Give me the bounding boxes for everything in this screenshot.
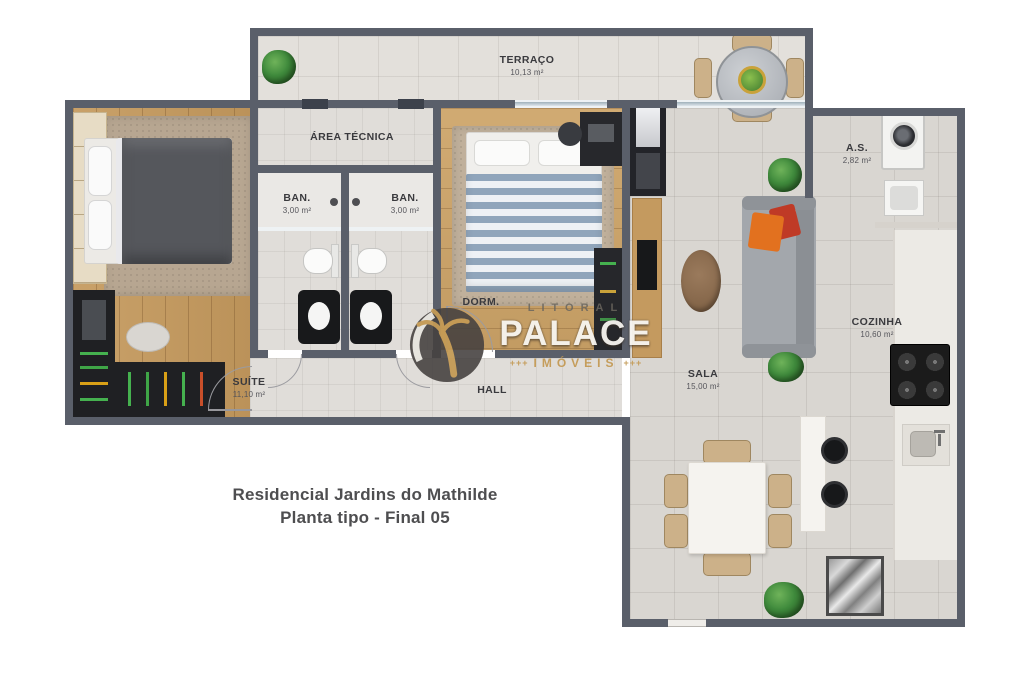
toilet	[357, 248, 387, 274]
wall	[258, 350, 268, 358]
room-name: TERRAÇO	[500, 54, 555, 66]
room-area: 10,13 m²	[500, 68, 555, 78]
room-name: BAN.	[283, 192, 310, 204]
terrace-chair	[786, 58, 804, 98]
room-label-terrace: TERRAÇO 10,13 m²	[500, 54, 555, 77]
room-name: SUÍTE	[233, 376, 266, 388]
as-kitchen-counter	[875, 222, 957, 228]
wall	[65, 417, 630, 425]
caption-line1: Residencial Jardins do Mathilde	[180, 484, 550, 507]
watermark-palace: PALACE	[492, 314, 660, 354]
appliance-front	[636, 153, 660, 189]
vanity-sink	[360, 302, 382, 330]
laptop	[588, 124, 614, 142]
suite-duvet	[116, 138, 232, 264]
floorplan-canvas: TERRAÇO 10,13 m² ÁREA TÉCNICA BAN. 3,00 …	[0, 0, 1024, 681]
watermark-imoveis-row: +++ IMÓVEIS +++	[492, 356, 660, 370]
terrace-chair	[694, 58, 712, 98]
wall	[706, 619, 965, 627]
dining-chair	[664, 474, 688, 508]
closet-accent	[182, 372, 185, 406]
watermark-litoral: LITORAL	[492, 302, 660, 314]
wall	[445, 100, 515, 108]
closet-accent	[146, 372, 149, 406]
dining-chair	[703, 440, 751, 464]
sink-bowl	[910, 431, 936, 457]
caption-line2: Planta tipo - Final 05	[180, 507, 550, 530]
vent-hatch	[398, 99, 424, 109]
room-area: 3,00 m²	[283, 206, 312, 216]
room-label-bathroom1: BAN. 3,00 m²	[283, 192, 312, 215]
washer-door	[890, 122, 918, 150]
vanity-sink	[308, 302, 330, 330]
desk-chair	[558, 122, 582, 146]
bedroom-striped-blanket	[466, 174, 602, 292]
terrace-sliding-door	[677, 100, 805, 108]
toilet	[303, 248, 333, 274]
closet-accent	[200, 372, 203, 406]
wall	[957, 108, 965, 627]
wall	[622, 619, 668, 627]
wall	[250, 28, 258, 108]
bar-stool	[821, 437, 848, 464]
room-area: 15,00 m²	[686, 382, 719, 392]
room-label-kitchen: COZINHA 10,60 m²	[852, 316, 903, 339]
bar-stool	[821, 481, 848, 508]
wall	[65, 100, 258, 108]
dining-chair	[768, 474, 792, 508]
room-name: BAN.	[391, 192, 418, 204]
suite-door-leaf	[208, 409, 252, 411]
closet-accent	[80, 398, 108, 401]
tv-screen	[82, 300, 106, 340]
shower-glass	[258, 227, 341, 231]
suite-pillow	[88, 146, 112, 196]
bedroom-pillow	[474, 140, 530, 166]
room-label-laundry: A.S. 2,82 m²	[843, 142, 872, 165]
tv-screen	[637, 240, 657, 290]
bedroom-window	[515, 100, 607, 108]
room-label-living-room: SALA 15,00 m²	[686, 368, 719, 391]
dining-chair	[703, 552, 751, 576]
closet-accent	[128, 372, 131, 406]
wall	[622, 417, 630, 627]
wall	[65, 100, 73, 425]
wall	[805, 116, 813, 198]
suite-pillow	[88, 200, 112, 250]
plan-caption: Residencial Jardins do Mathilde Planta t…	[180, 484, 550, 530]
closet-accent	[164, 372, 167, 406]
room-area: 11,10 m²	[233, 390, 266, 400]
kitchen-island	[800, 416, 826, 532]
coffee-pouf	[681, 250, 721, 312]
closet-accent	[600, 262, 616, 265]
agency-watermark: LITORAL PALACE +++ IMÓVEIS +++	[404, 298, 664, 394]
wall	[341, 165, 349, 358]
dining-table	[688, 462, 766, 554]
room-area: 2,82 m²	[843, 156, 872, 166]
room-label-bathroom2: BAN. 3,00 m²	[391, 192, 420, 215]
closet-accent	[80, 352, 108, 355]
wall	[250, 108, 258, 358]
sofa-pillow-orange	[748, 212, 785, 252]
palace-logo-icon	[408, 306, 486, 384]
room-name: A.S.	[846, 142, 868, 154]
shower-head	[330, 198, 338, 206]
sink-faucet	[934, 430, 945, 433]
room-label-technical-area: ÁREA TÉCNICA	[310, 131, 394, 144]
room-name: ÁREA TÉCNICA	[310, 131, 394, 143]
suite-ottoman	[126, 322, 170, 352]
dining-chair	[664, 514, 688, 548]
shower-head	[352, 198, 360, 206]
watermark-marks: +++	[510, 358, 529, 368]
wall	[250, 28, 813, 36]
laundry-basin	[890, 186, 918, 210]
stove	[890, 344, 950, 406]
wall	[805, 108, 965, 116]
watermark-imoveis: IMÓVEIS	[533, 356, 618, 370]
dining-chair	[768, 514, 792, 548]
table-centerpiece	[738, 66, 766, 94]
shower-glass	[349, 227, 433, 231]
watermark-text: LITORAL PALACE +++ IMÓVEIS +++	[492, 302, 660, 370]
entry-door-opening	[668, 619, 706, 627]
appliance-front	[636, 107, 660, 147]
vent-hatch	[302, 99, 328, 109]
room-area: 10,60 m²	[852, 330, 903, 340]
room-name: SALA	[688, 368, 718, 380]
watermark-marks: +++	[624, 358, 643, 368]
wall	[302, 350, 396, 358]
glass-cabinet	[826, 556, 884, 616]
room-label-suite: SUÍTE 11,10 m²	[233, 376, 266, 399]
closet-accent	[80, 382, 108, 385]
wall	[258, 165, 441, 173]
room-name: COZINHA	[852, 316, 903, 328]
sink-faucet	[938, 434, 941, 446]
room-area: 3,00 m²	[391, 206, 420, 216]
wall	[805, 28, 813, 116]
wall	[607, 100, 677, 108]
closet-accent	[80, 366, 108, 369]
closet-accent	[600, 290, 616, 293]
